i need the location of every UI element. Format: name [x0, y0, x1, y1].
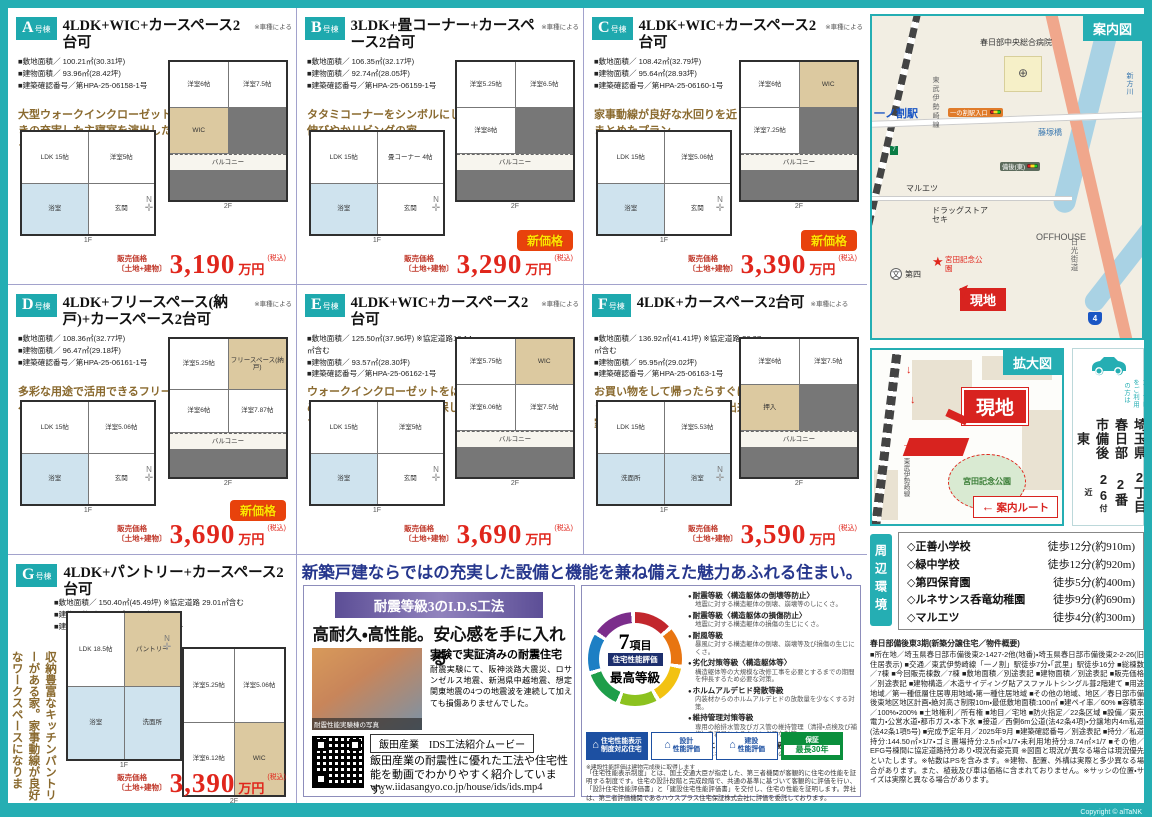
unit-title: 4LDK+WIC+カースペース2台可 — [639, 15, 820, 51]
property-overview: 春日部備後東3期(新築分譲住宅／物件概要) ■所在地／埼玉県春日部市備後東2-1… — [870, 638, 1144, 800]
unit-title: 4LDK+WIC+カースペース2台可 — [63, 15, 249, 51]
room-label: 洋室7.87帖 — [229, 390, 287, 433]
price-amount: 3,290 — [457, 253, 523, 276]
room-label: 洋室7.5帖 — [800, 339, 858, 384]
price-tax-note: (税込) — [838, 523, 857, 533]
unit-price: 販売価格〔土地+建物〕 3,390 万円 (税込) — [688, 253, 857, 276]
site-marker: 現地 — [964, 390, 1026, 423]
qr-code[interactable] — [312, 736, 364, 788]
surroundings-title: 周辺環境 — [870, 534, 892, 626]
room-label: 洋室5.06帖 — [235, 649, 285, 722]
compass-north-icon: N — [160, 635, 174, 653]
room-label: LDK 15帖 — [22, 402, 88, 453]
performance-item: 耐風等級暴風に対する構造躯体の倒壊、崩壊等及び損傷の生じにくさ。 — [688, 631, 858, 657]
room-label: 洋室6.5帖 — [516, 62, 574, 107]
floorplan-1f-drawing: LDK 15帖洋室5.53帖洗面所浴室 — [596, 400, 732, 506]
unit-price: 販売価格〔土地+建物〕 3,290 万円 (税込) — [404, 253, 573, 276]
floorplan-1f: LDK 15帖畳コーナー 4帖浴室玄関 1F — [309, 130, 445, 244]
enlarged-row: 拡大図 ↓ ↓ → 現地 宮田記念公園 東武伊勢崎線 ←案内ルート — [870, 348, 1144, 526]
unit-title: 4LDK+WIC+カースペース2台可 — [351, 292, 536, 328]
new-price-badge: 新価格 — [801, 230, 857, 251]
spec-permit-number: ■建築確認番号／第HPA-25-06161-1号 — [18, 357, 188, 369]
floorplan-2f-drawing: 洋室5.75帖WIC洋室6.06帖洋室7.5帖バルコニー — [455, 337, 575, 479]
room-label: 洋室5帖 — [378, 402, 444, 453]
room-label: 洋室5.25帖 — [184, 649, 234, 722]
price-labels: 販売価格〔土地+建物〕 — [404, 254, 453, 276]
floorplan-2f-drawing: 洋室5.25帖洋室6.5帖洋室8帖バルコニー — [455, 60, 575, 202]
spec-land-area: ■敷地面積／ 125.50㎡(37.96坪) ※協定道路16.14㎡含む — [307, 333, 477, 357]
unit-price-block: 新価格 販売価格〔土地+建物〕 3,390 万円 (税込) — [688, 230, 857, 276]
price-labels: 販売価格〔土地+建物〕 — [688, 254, 737, 276]
price-unit: 万円 — [238, 533, 264, 546]
room-label: LDK 18.5帖 — [68, 613, 124, 686]
price-tax-note: (税込) — [267, 253, 286, 263]
badge-hosho: 保証最長30年 — [781, 732, 843, 760]
map-label-maruetsu: マルエツ — [906, 184, 938, 193]
new-price-badge: 新価格 — [517, 230, 573, 251]
unit-suffix: 号棟 — [609, 302, 625, 311]
address-line1: 埼玉県春日部市備後東 — [1073, 412, 1144, 466]
flyer-content: A号棟 4LDK+WIC+カースペース2台可 ※車種による ■敷地面積／ 100… — [8, 8, 1144, 803]
flyer-sheet: A号棟 4LDK+WIC+カースペース2台可 ※車種による ■敷地面積／ 100… — [0, 0, 1152, 817]
compass-north-icon: N — [142, 466, 156, 484]
unit-catch-copy: 収納豊富なキッチンパントリーがある家。家事動線が良好なワークスペースになります。 — [14, 651, 58, 801]
price-tax-note: (税込) — [267, 772, 286, 782]
quake-proof: 実験で実証済みの耐震住宅 耐震実験にて、阪神淡路大震災、ロサンゼルス地震、新潟県… — [430, 646, 572, 709]
enlarged-map-title: 拡大図 — [1003, 350, 1062, 375]
proof-title: 実験で実証済みの耐震住宅 — [430, 646, 572, 662]
unit-tag: F号棟 — [592, 294, 631, 317]
price-tax-note: (税込) — [838, 253, 857, 263]
room-label: 洋室6帖 — [170, 390, 228, 433]
promo-headline: 新築戸建ならではの充実した設備と機能を兼ね備えた魅力あふれる住まい。 — [297, 559, 867, 583]
unit-title-note: ※車種による — [811, 292, 849, 308]
room-label: バルコニー — [170, 154, 286, 170]
unit-title: 4LDK+パントリー+カースペース2台可 — [63, 562, 286, 598]
floorplan-1f-drawing: LDK 15帖洋室5.06帖浴室玄関 — [596, 130, 732, 236]
room-label: 洋室7.5帖 — [229, 62, 287, 107]
unit-title: 4LDK+カースペース2台可 — [637, 292, 805, 312]
floorplan-1f: LDK 15帖洋室5.53帖洗面所浴室 1F — [596, 400, 732, 514]
unit-price: 販売価格〔土地+建物〕 3,690 万円 (税込) — [117, 523, 286, 546]
units-grid: A号棟 4LDK+WIC+カースペース2台可 ※車種による ■敷地面積／ 100… — [8, 8, 867, 803]
floor-label-2f: 2F — [739, 480, 859, 487]
address-line2: 2丁目2番26付近 — [1073, 468, 1144, 516]
floorplan-1f-drawing: LDK 15帖洋室5帖浴室玄関 — [20, 130, 156, 236]
surroundings-item: ◇ルネサンス呑竜幼稚園徒歩9分(約690m) — [907, 591, 1135, 607]
price-tax-note: (税込) — [267, 523, 286, 533]
route-shield: 4 — [1088, 312, 1102, 325]
movie-label: 飯田産業 IDS工法紹介ムービー — [370, 734, 534, 753]
room-label: 浴室 — [68, 687, 124, 760]
unit-header: C号棟 4LDK+WIC+カースペース2台可 ※車種による — [592, 15, 863, 51]
unit-tag: D号棟 — [16, 294, 57, 317]
unit-price-block: 新価格 販売価格〔土地+建物〕 3,690 万円 (税込) — [117, 500, 286, 546]
unit-suffix: 号棟 — [35, 25, 51, 34]
room-label: 洋室5.06帖 — [89, 402, 155, 453]
guide-map: 案内図 ⊕ 春日部中央総合病院 一ノ割駅 7 一の割駅入口 備後(東) 藤塚橋 … — [870, 14, 1144, 340]
surroundings-item: ◇第四保育園徒歩5分(約400m) — [907, 574, 1135, 590]
house-icon: ⌂ — [729, 739, 736, 752]
traffic-signal-icon — [1027, 164, 1038, 168]
hospital-icon: ⊕ — [1018, 66, 1028, 80]
floorplan-2f-drawing: 洋室6帖洋室7.5帖押入バルコニー — [739, 337, 859, 479]
map-label-railline: 東武伊勢崎線 — [930, 76, 940, 130]
unit-price-block: 新価格 販売価格〔土地+建物〕 3,690 万円 (税込) — [404, 500, 573, 546]
unit-title-note: ※車種による — [254, 15, 292, 31]
floor-label-2f: 2F — [182, 798, 286, 803]
seven-count: 7項目 — [619, 632, 652, 652]
floorplan-2f-drawing: 洋室6帖洋室7.5帖WICバルコニー — [168, 60, 288, 202]
route-arrow-icon: ↓ — [906, 364, 912, 376]
price-tax-note: (税込) — [554, 253, 573, 263]
floor-label-2f: 2F — [739, 203, 859, 210]
room-label: 洋室6.06帖 — [457, 385, 515, 430]
movie-url[interactable]: www.iidasangyo.co.jp/house/ids/ids.mp4 — [370, 782, 543, 793]
floorplan-1f: LDK 15帖洋室5帖浴室玄関 1F — [309, 400, 445, 514]
unit-letter: G — [22, 566, 34, 583]
unit-header: A号棟 4LDK+WIC+カースペース2台可 ※車種による — [16, 15, 292, 51]
price-amount: 3,390 — [170, 772, 236, 795]
room-label: LDK 15帖 — [311, 402, 377, 453]
ids-method-box: 耐震等級3のI.D.S工法 高耐久・高性能。安心感を手に入れる 耐震性能実験棟の… — [303, 585, 575, 797]
price-labels: 販売価格〔土地+建物〕 — [117, 773, 166, 795]
floorplan-2f: 洋室5.25帖フリースペース(納戸)洋室6帖洋室7.87帖バルコニー 2F — [168, 337, 288, 487]
floorplan-2f: 洋室6帖洋室7.5帖WICバルコニー 2F — [168, 60, 288, 210]
unit-title: 4LDK+フリースペース(納戸)+カースペース2台可 — [63, 292, 249, 328]
room-label: LDK 15帖 — [598, 402, 664, 453]
unit-price: 販売価格〔土地+建物〕 3,190 万円 (税込) — [117, 253, 286, 276]
room-label: 浴室 — [22, 184, 88, 235]
room-label: 洋室6帖 — [741, 339, 799, 384]
price-unit: 万円 — [809, 533, 835, 546]
price-unit: 万円 — [809, 263, 835, 276]
surroundings-item: ◇マルエツ徒歩4分(約300m) — [907, 609, 1135, 625]
seven-eleven-icon: 7 — [890, 146, 898, 155]
house-icon: ⌂ — [664, 739, 671, 752]
new-price-badge: 新価格 — [230, 500, 286, 521]
room-label: バルコニー — [457, 431, 573, 447]
unit-price-block: 新価格 販売価格〔土地+建物〕 3,190 万円 (税込) — [117, 230, 286, 276]
floorplan-1f-drawing: LDK 15帖洋室5.06帖浴室玄関 — [20, 400, 156, 506]
site-marker: 現地 — [960, 288, 1006, 311]
performance-item: 劣化対策等級〈構造躯体等〉構造躯体等の大規模な改修工事を必要とするまでの期間を伸… — [688, 658, 858, 684]
unit-tag: B号棟 — [305, 17, 345, 40]
unit-panel: A号棟 4LDK+WIC+カースペース2台可 ※車種による ■敷地面積／ 100… — [8, 8, 296, 284]
room-label: バルコニー — [170, 433, 286, 449]
compass-north-icon: N — [429, 466, 443, 484]
right-column: 案内図 ⊕ 春日部中央総合病院 一ノ割駅 7 一の割駅入口 備後(東) 藤塚橋 … — [870, 8, 1144, 803]
floorplan-1f: LDK 15帖洋室5.06帖浴室玄関 1F — [596, 130, 732, 244]
unit-price: 販売価格〔土地+建物〕 3,690 万円 (税込) — [404, 523, 573, 546]
map-label-river: 新方川 — [1124, 72, 1134, 96]
room-label: 洋室5.06帖 — [665, 132, 731, 183]
unit-header: B号棟 3LDK+畳コーナー+カースペース2台可 ※車種による — [305, 15, 579, 51]
map-label-bridge: 藤塚橋 — [1038, 128, 1062, 137]
proof-text: 耐震実験にて、阪神淡路大震災、ロサンゼルス地震、新潟県中越地震、想定関東地震の4… — [430, 664, 572, 709]
room-label: WIC — [516, 339, 574, 384]
map-label-drugstore: ドラッグストア セキ — [932, 206, 992, 224]
unit-title-note: ※車種による — [825, 15, 863, 31]
map-label-school: 第四 — [905, 270, 921, 279]
room-label: 浴室 — [311, 454, 377, 505]
spec-building-area: ■建物面積／ 92.74㎡(28.05坪) — [307, 68, 477, 80]
compass-north-icon: N — [429, 196, 443, 214]
room-label: LDK 15帖 — [22, 132, 88, 183]
ids-banner: 耐震等級3のI.D.S工法 — [335, 592, 543, 618]
unit-title-note: ※車種による — [541, 292, 579, 308]
unit-title-note: ※車種による — [254, 292, 292, 308]
room-label: 洋室7.5帖 — [516, 385, 574, 430]
site-address: カーナビをご利用の方は 埼玉県春日部市備後東 2丁目2番26付近 — [1073, 378, 1144, 516]
school-icon: 文 — [890, 268, 902, 280]
map-label-station: 一ノ割駅 — [874, 108, 918, 121]
road — [872, 196, 1072, 201]
price-labels: 販売価格〔土地+建物〕 — [117, 254, 166, 276]
unit-suffix: 号棟 — [323, 25, 339, 34]
photo-caption: 耐震性能実験棟の写真 — [312, 718, 422, 730]
floorplan-1f: LDK 15帖洋室5.06帖浴室玄関 1F — [20, 400, 156, 514]
room-label: 洋室6帖 — [170, 62, 228, 107]
floorplan-2f: 洋室5.25帖洋室6.5帖洋室8帖バルコニー 2F — [455, 60, 575, 210]
signal-label: 一の割駅入口 — [948, 108, 1003, 117]
spec-building-area: ■建物面積／ 93.96㎡(28.42坪) — [18, 68, 188, 80]
room-label: フリースペース(納戸) — [229, 339, 287, 389]
unit-panel: D号棟 4LDK+フリースペース(納戸)+カースペース2台可 ※車種による ■敷… — [8, 285, 296, 554]
unit-price-block: 新価格 販売価格〔土地+建物〕 3,390 万円 (税込) — [117, 749, 286, 795]
unit-letter: B — [311, 19, 322, 36]
overview-body: ■所在地／埼玉県春日部市備後東2-1427-2他(地番)・埼玉県春日部市備後東2… — [870, 650, 1144, 785]
badge-hyoji: ⌂住宅性能表示制度対応住宅 — [586, 732, 648, 760]
price-labels: 販売価格〔土地+建物〕 — [688, 524, 737, 546]
performance-box: 7項目 住宅性能評価 最高等級 耐震等級〈構造躯体の倒壊等防止〉地震に対する構造… — [581, 585, 861, 797]
route-arrow-icon: ↓ — [910, 394, 916, 406]
room-label: 押入 — [741, 385, 799, 430]
floorplan-1f-drawing: LDK 15帖洋室5帖浴室玄関 — [309, 400, 445, 506]
rating-band: 住宅性能評価 — [608, 653, 663, 666]
house-icon: ⌂ — [592, 739, 599, 752]
enlarged-map: 拡大図 ↓ ↓ → 現地 宮田記念公園 東武伊勢崎線 ←案内ルート — [870, 348, 1064, 526]
route-guide-box: ←案内ルート — [973, 496, 1059, 518]
map-label-park: 宮田記念公園 — [945, 256, 989, 273]
quake-test-photo: 耐震性能実験棟の写真 — [312, 648, 422, 730]
spec-land-area: ■敷地面積／ 106.35㎡(32.17坪) — [307, 56, 477, 68]
unit-suffix: 号棟 — [323, 302, 339, 311]
unit-panel: F号棟 4LDK+カースペース2台可 ※車種による ■敷地面積／ 136.92㎡… — [584, 285, 867, 554]
floorplan-2f: 洋室6帖WIC洋室7.25帖バルコニー 2F — [739, 60, 859, 210]
spec-building-area: ■建物面積／ 93.57㎡(28.30坪) — [307, 357, 477, 369]
surroundings-item: ◇正善小学校徒歩12分(約910m) — [907, 538, 1135, 554]
unit-tag: G号棟 — [16, 564, 57, 587]
unit-panel: G号棟 4LDK+パントリー+カースペース2台可 ■敷地面積／ 150.40㎡(… — [8, 555, 296, 803]
room-label: 洋室5.53帖 — [665, 402, 731, 453]
room-label: バルコニー — [741, 431, 857, 447]
price-amount: 3,390 — [741, 253, 807, 276]
room-label: 洋室5.25帖 — [457, 62, 515, 107]
unit-tag: A号棟 — [16, 17, 57, 40]
price-tax-note: (税込) — [554, 523, 573, 533]
floor-label-2f: 2F — [455, 203, 575, 210]
unit-letter: C — [598, 19, 610, 36]
unit-specs: ■敷地面積／ 100.21㎡(30.31坪) ■建物面積／ 93.96㎡(28.… — [18, 56, 188, 91]
price-amount: 3,690 — [170, 523, 236, 546]
unit-price-block: 新価格 販売価格〔土地+建物〕 3,590 万円 (税込) — [688, 500, 857, 546]
signal-label: 備後(東) — [1000, 162, 1040, 171]
spec-land-area: ■敷地面積／ 150.40㎡(45.49坪) ※協定道路 29.01㎡含む — [54, 597, 294, 609]
room-label: WIC — [170, 108, 228, 153]
compass-north-icon: N — [713, 466, 727, 484]
unit-specs: ■敷地面積／ 108.36㎡(32.77坪) ■建物面積／ 96.47㎡(29.… — [18, 333, 188, 368]
badge-kensetsu: ⌂建設性能評価 — [716, 732, 778, 760]
compass-north-icon: N — [713, 196, 727, 214]
badge-sekkei: ⌂設計性能評価 — [651, 732, 713, 760]
room-label: WIC — [800, 62, 858, 107]
promo-panel: 新築戸建ならではの充実した設備と機能を兼ね備えた魅力あふれる住まい。 耐震等級3… — [297, 555, 867, 803]
seven-grade-ring: 7項目 住宅性能評価 最高等級 — [588, 612, 682, 706]
unit-header: D号棟 4LDK+フリースペース(納戸)+カースペース2台可 ※車種による — [16, 292, 292, 328]
unit-price: 販売価格〔土地+建物〕 3,590 万円 (税込) — [688, 523, 857, 546]
unit-letter: D — [22, 296, 34, 313]
traffic-signal-icon — [990, 110, 1001, 114]
performance-item: 耐震等級〈構造躯体の損傷防止〉地震に対する構造躯体の損傷の生じにくさ。 — [688, 611, 858, 629]
room-label: 浴室 — [598, 184, 664, 235]
car-icon — [1088, 354, 1128, 376]
railway-line — [870, 14, 925, 340]
spec-building-area: ■建物面積／ 96.47㎡(29.18坪) — [18, 345, 188, 357]
floor-label-2f: 2F — [455, 480, 575, 487]
room-label: 畳コーナー 4帖 — [378, 132, 444, 183]
certification-badges: ⌂住宅性能表示制度対応住宅 ⌂設計性能評価 ⌂建設性能評価 保証最長30年 — [586, 732, 843, 760]
surroundings-item: ◇緑中学校徒歩12分(約920m) — [907, 556, 1135, 572]
surroundings-list: ◇正善小学校徒歩12分(約910m) ◇緑中学校徒歩12分(約920m) ◇第四… — [898, 532, 1144, 630]
spec-permit-number: ■建築確認番号／第HPA-25-06158-1号 — [18, 80, 188, 92]
price-unit: 万円 — [238, 782, 264, 795]
arrow-left-icon: ← — [982, 499, 995, 514]
room-label: 洋室8帖 — [457, 108, 515, 153]
price-amount: 3,590 — [741, 523, 807, 546]
unit-header: F号棟 4LDK+カースペース2台可 ※車種による — [592, 292, 863, 317]
map-label-railline: 東武伊勢崎線 — [900, 458, 910, 497]
room-label: 洗面所 — [598, 454, 664, 505]
spec-land-area: ■敷地面積／ 108.36㎡(32.77坪) — [18, 333, 188, 345]
price-labels: 販売価格〔土地+建物〕 — [117, 524, 166, 546]
performance-item: 耐震等級〈構造躯体の倒壊等防止〉地震に対する構造躯体の倒壊、崩壊等のしにくさ。 — [688, 591, 858, 609]
overview-title: 春日部備後東3期(新築分譲住宅／物件概要) — [870, 638, 1144, 649]
unit-tag: E号棟 — [305, 294, 345, 317]
room-label: バルコニー — [457, 154, 573, 170]
floorplan-2f-drawing: 洋室5.25帖フリースペース(納戸)洋室6帖洋室7.87帖バルコニー — [168, 337, 288, 479]
unit-letter: F — [598, 296, 608, 313]
unit-title-note: ※車種による — [541, 15, 579, 31]
room-label: 洋室5.25帖 — [170, 339, 228, 389]
unit-suffix: 号棟 — [611, 25, 627, 34]
floor-label-2f: 2F — [168, 203, 288, 210]
unit-header: E号棟 4LDK+WIC+カースペース2台可 ※車種による — [305, 292, 579, 328]
spec-permit-number: ■建築確認番号／第HPA-25-06162-1号 — [307, 368, 477, 380]
performance-item: ホルムアルデヒド発散等級内装材からのホルムアルデヒドの放散量を少なくする対策。 — [688, 686, 858, 712]
carnavi-note: カーナビをご利用の方は — [1073, 378, 1144, 409]
compass-north-icon: N — [142, 196, 156, 214]
price-amount: 3,190 — [170, 253, 236, 276]
room-label: 洋室5.75帖 — [457, 339, 515, 384]
room-label: 洋室6帖 — [741, 62, 799, 107]
room-label: LDK 15帖 — [598, 132, 664, 183]
spec-land-area: ■敷地面積／ 100.21㎡(30.31坪) — [18, 56, 188, 68]
site-star-icon: ★ — [932, 254, 944, 270]
unit-header: G号棟 4LDK+パントリー+カースペース2台可 — [16, 562, 292, 598]
unit-letter: A — [22, 19, 34, 36]
room-label: 浴室 — [22, 454, 88, 505]
floorplan-2f-drawing: 洋室6帖WIC洋室7.25帖バルコニー — [739, 60, 859, 202]
price-unit: 万円 — [525, 263, 551, 276]
price-amount: 3,690 — [457, 523, 523, 546]
room-label: 洋室7.25帖 — [741, 108, 799, 153]
floorplan-1f-drawing: LDK 15帖畳コーナー 4帖浴室玄関 — [309, 130, 445, 236]
room-label: 洋室5帖 — [89, 132, 155, 183]
site-lot — [903, 438, 970, 456]
price-unit: 万円 — [238, 263, 264, 276]
guide-map-title: 案内図 — [1083, 16, 1142, 41]
floor-label-2f: 2F — [168, 480, 288, 487]
unit-title: 3LDK+畳コーナー+カースペース2台可 — [351, 15, 536, 51]
map-label-road: 日光街道 — [1069, 238, 1080, 272]
room-label: LDK 15帖 — [311, 132, 377, 183]
performance-fine-print: 「住宅性能表示制度」とは、国土交通大臣が指定した、第三者機関が客観的に住宅の性能… — [586, 770, 856, 803]
floorplan-2f: 洋室5.75帖WIC洋室6.06帖洋室7.5帖バルコニー 2F — [455, 337, 575, 487]
spec-permit-number: ■建築確認番号／第HPA-25-06159-1号 — [307, 80, 477, 92]
unit-panel: C号棟 4LDK+WIC+カースペース2台可 ※車種による ■敷地面積／ 108… — [584, 8, 867, 284]
unit-tag: C号棟 — [592, 17, 633, 40]
unit-specs: ■敷地面積／ 106.35㎡(32.17坪) ■建物面積／ 92.74㎡(28.… — [307, 56, 477, 91]
price-labels: 販売価格〔土地+建物〕 — [404, 524, 453, 546]
room-label: バルコニー — [741, 154, 857, 170]
unit-panel: E号棟 4LDK+WIC+カースペース2台可 ※車種による ■敷地面積／ 125… — [297, 285, 583, 554]
unit-suffix: 号棟 — [35, 302, 51, 311]
unit-price: 販売価格〔土地+建物〕 3,390 万円 (税込) — [117, 772, 286, 795]
copyright-note: Copyright © alTaNK — [1080, 809, 1142, 816]
floorplan-1f: LDK 15帖洋室5帖浴室玄関 1F — [20, 130, 156, 244]
rating-grade: 最高等級 — [610, 667, 660, 686]
price-unit: 万円 — [525, 533, 551, 546]
unit-panel: B号棟 3LDK+畳コーナー+カースペース2台可 ※車種による ■敷地面積／ 1… — [297, 8, 583, 284]
unit-letter: E — [311, 296, 322, 313]
unit-suffix: 号棟 — [35, 572, 51, 581]
unit-specs: ■敷地面積／ 125.50㎡(37.96坪) ※協定道路16.14㎡含む ■建物… — [307, 333, 477, 380]
map-label-hospital: 春日部中央総合病院 — [980, 38, 1052, 47]
floorplan-2f: 洋室6帖洋室7.5帖押入バルコニー 2F — [739, 337, 859, 487]
surroundings-section: 周辺環境 ◇正善小学校徒歩12分(約910m) ◇緑中学校徒歩12分(約920m… — [870, 532, 1144, 632]
address-strip: カーナビをご利用の方は 埼玉県春日部市備後東 2丁目2番26付近 — [1072, 348, 1144, 526]
unit-price-block: 新価格 販売価格〔土地+建物〕 3,290 万円 (税込) — [404, 230, 573, 276]
room-label: 浴室 — [311, 184, 377, 235]
